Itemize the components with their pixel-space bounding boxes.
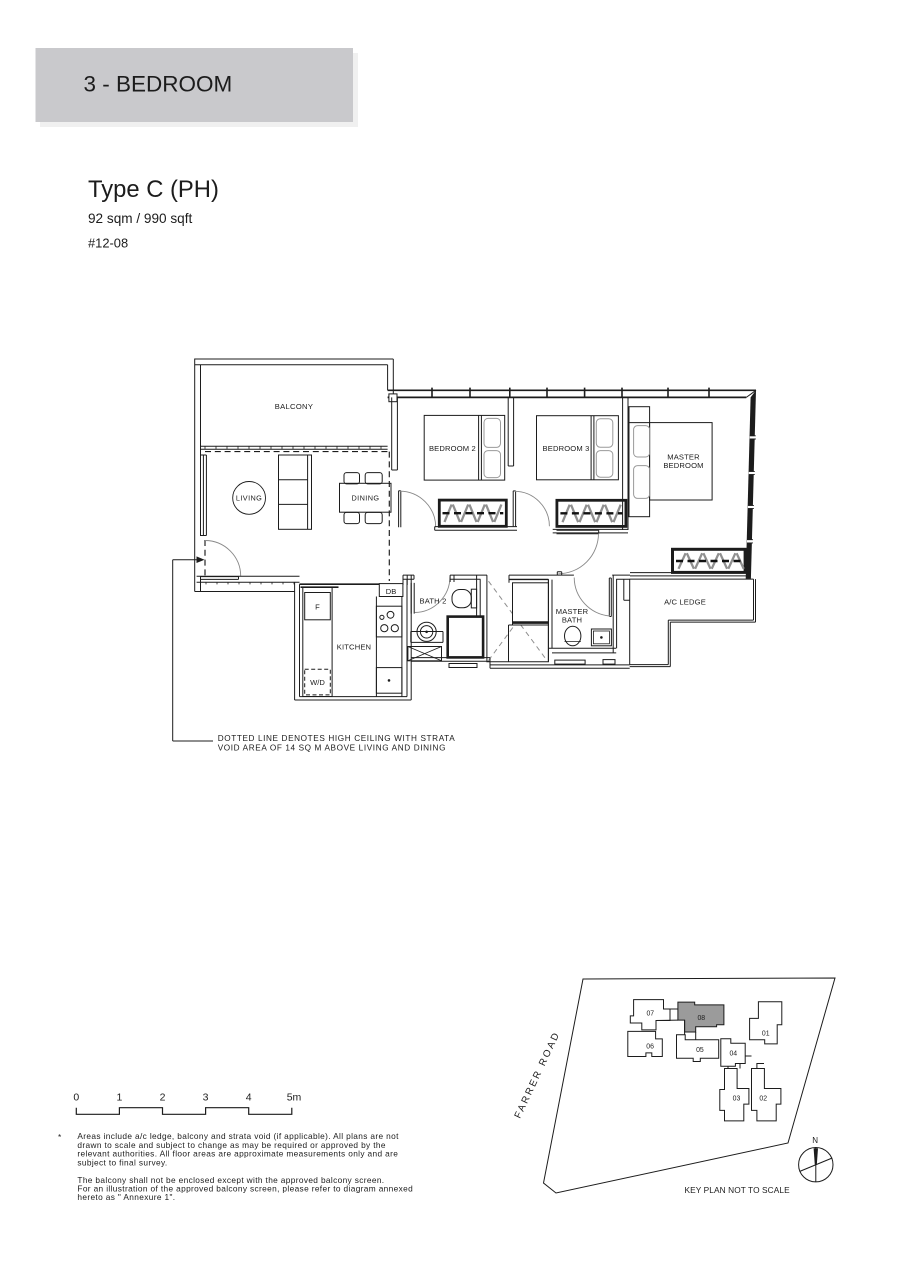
svg-text:08: 08 [697,1015,705,1022]
svg-text:3: 3 [203,1092,209,1104]
svg-text:04: 04 [729,1050,737,1057]
svg-text:4: 4 [246,1092,252,1104]
svg-text:DOTTED LINE DENOTES HIGH CEILI: DOTTED LINE DENOTES HIGH CEILING WITH ST… [218,734,456,743]
svg-text:W/D: W/D [310,678,325,687]
svg-text:LIVING: LIVING [236,494,262,503]
svg-text:FARRER ROAD: FARRER ROAD [513,1030,563,1121]
svg-text:02: 02 [759,1096,767,1103]
svg-text:05: 05 [696,1047,704,1054]
svg-text:06: 06 [646,1044,654,1051]
svg-text:F: F [315,603,320,612]
svg-text:5m: 5m [287,1092,302,1104]
svg-text:#12-08: #12-08 [88,236,128,251]
svg-text:01: 01 [762,1031,770,1038]
svg-text:0: 0 [73,1092,79,1104]
svg-text:VOID AREA OF 14 SQ M ABOVE LIV: VOID AREA OF 14 SQ M ABOVE LIVING AND DI… [218,744,446,753]
svg-text:2: 2 [160,1092,166,1104]
svg-text:KEY PLAN NOT TO SCALE: KEY PLAN NOT TO SCALE [685,1185,791,1195]
svg-text:BATH: BATH [562,615,582,624]
svg-text:1: 1 [116,1092,122,1104]
svg-text:hereto as " Annexure 1".: hereto as " Annexure 1". [77,1192,175,1202]
svg-text:03: 03 [733,1096,741,1103]
svg-text:Type C (PH): Type C (PH) [88,176,219,203]
svg-text:KITCHEN: KITCHEN [337,642,371,651]
svg-text:*: * [58,1132,62,1142]
svg-text:BATH 2: BATH 2 [420,596,447,605]
svg-text:3 - BEDROOM: 3 - BEDROOM [84,72,233,97]
svg-text:A/C LEDGE: A/C LEDGE [664,598,706,607]
svg-text:DINING: DINING [352,494,380,503]
svg-text:92 sqm / 990 sqft: 92 sqm / 990 sqft [88,211,192,226]
svg-text:DB: DB [386,587,397,596]
svg-text:BEDROOM 3: BEDROOM 3 [543,444,590,453]
svg-text:BEDROOM 2: BEDROOM 2 [429,444,476,453]
svg-text:N: N [812,1136,818,1145]
svg-text:BEDROOM: BEDROOM [663,461,703,470]
svg-text:07: 07 [646,1010,654,1017]
svg-text:subject to final survey.: subject to final survey. [77,1157,167,1167]
svg-text:BALCONY: BALCONY [275,402,313,411]
